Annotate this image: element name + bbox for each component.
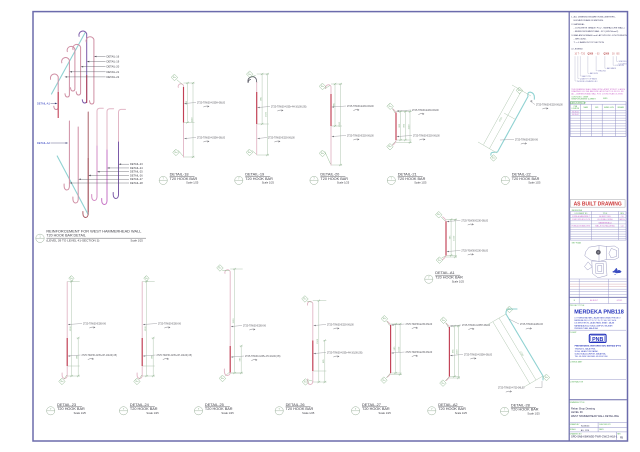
svg-text:DETAIL-26: DETAIL-26 [130, 173, 143, 177]
svg-text:SIZE: SIZE [595, 107, 598, 109]
svg-text:1500: 1500 [70, 326, 72, 332]
svg-text:T20 HOOK BAR: T20 HOOK BAR [398, 177, 426, 181]
svg-text:AS BUILT: AS BUILT [590, 299, 599, 302]
svg-text:106 SEKSYEN 90, JALAN HANG JEB: 106 SEKSYEN 90, JALAN HANG JEBAT / JALAN [574, 322, 614, 325]
svg-text:LOCATION: LOCATION [619, 63, 629, 66]
svg-text:Scale 1/25: Scale 1/25 [131, 238, 144, 242]
svg-text:MERDEKA 118, LOT 51, 57, 70, 7: MERDEKA 118, LOT 51, 57, 70, 72, 100, 10… [574, 319, 617, 322]
svg-text:1500: 1500 [266, 111, 268, 117]
svg-text:1500: 1500 [317, 338, 319, 344]
svg-text:DRAWING TITLE: DRAWING TITLE [570, 401, 585, 404]
svg-text:DETAIL-23: DETAIL-23 [57, 402, 76, 407]
svg-text:2T25-T0W30-E230-06L00: 2T25-T0W30-E230-06L00 [347, 135, 374, 137]
svg-text:2T25-T0W30-E260-06: 2T25-T0W30-E260-06 [520, 324, 544, 326]
svg-text:2T25-T0W30-E230-06L00: 2T25-T0W30-E230-06L00 [461, 250, 488, 252]
svg-text:AS BUILT DRAWING: AS BUILT DRAWING [574, 202, 622, 208]
svg-text:Scale 1/25: Scale 1/25 [302, 411, 315, 415]
svg-text:2T25-T0W30-4235H-06L00: 2T25-T0W30-4235H-06L00 [462, 325, 491, 327]
svg-text:Q300: Q300 [588, 53, 594, 55]
svg-text:2T25-T0W30-E230-06L00: 2T25-T0W30-E230-06L00 [413, 135, 440, 137]
svg-text:Rebar Shop Drawing: Rebar Shop Drawing [571, 406, 596, 410]
svg-text:Scale 1/25: Scale 1/25 [262, 181, 275, 185]
svg-text:DETAIL-20: DETAIL-20 [107, 65, 120, 69]
svg-text:DETAIL-22: DETAIL-22 [512, 171, 531, 176]
svg-text:Scale 1/25: Scale 1/25 [186, 181, 199, 185]
svg-text:DETAIL-26: DETAIL-26 [286, 402, 305, 407]
svg-text:DETAIL-A1: DETAIL-A1 [37, 101, 50, 105]
svg-text:DETAIL-21: DETAIL-21 [398, 171, 417, 176]
svg-text:LVL39-02: LVL39-02 [572, 114, 579, 116]
svg-text:Scale 1/25: Scale 1/25 [379, 411, 392, 415]
svg-text:Scale 1/25: Scale 1/25 [337, 181, 350, 185]
svg-text:Scale 1/25: Scale 1/25 [146, 411, 159, 415]
svg-text:2T25-T0W30-E260-06: 2T25-T0W30-E260-06 [158, 323, 182, 325]
svg-text:DETAIL-16: DETAIL-16 [107, 55, 120, 59]
svg-text:T20 HOOK BAR: T20 HOOK BAR [320, 177, 348, 181]
svg-text:T20 HOOK BAR: T20 HOOK BAR [438, 407, 466, 411]
svg-text:T20 HOOK BAR: T20 HOOK BAR [435, 276, 463, 280]
svg-text:2T25-T0W30-E230-06L00: 2T25-T0W30-E230-06L00 [412, 110, 439, 112]
svg-text:SPD-SAB-KBKW3E-TWR-CWC3-H18-1: SPD-SAB-KBKW3E-TWR-CWC3-H18-1 [571, 435, 618, 439]
svg-text:1500: 1500 [398, 346, 400, 352]
svg-text:DETAIL-A2: DETAIL-A2 [438, 402, 457, 407]
svg-text:2T25-T0W30-4235H-06L00: 2T25-T0W30-4235H-06L00 [197, 102, 226, 104]
svg-text:BAR MARK: BAR MARK [607, 67, 617, 70]
svg-text:MAHARAJALELA, KUALA LUMPUR, WI: MAHARAJALELA, KUALA LUMPUR, WILAYAH [574, 324, 613, 327]
svg-text:2T25-T0W30-4235+4H-10L00(.05): 2T25-T0W30-4235+4H-10L00(.05) [271, 106, 307, 108]
svg-text:Scale 1/25: Scale 1/25 [74, 411, 87, 415]
svg-text:T20 HOOK BAR: T20 HOOK BAR [362, 407, 390, 411]
svg-text:GRID: GRID [603, 98, 608, 100]
svg-text:2T25-T0W30-E230-06L00: 2T25-T0W30-E230-06L00 [406, 324, 433, 326]
svg-text:ELEVATION ARE IN METERS.: ELEVATION ARE IN METERS. [574, 19, 604, 22]
svg-text:EMBED LGTH: EMBED LGTH [604, 107, 614, 109]
svg-text:10 T - T20: 10 T - T20 [575, 53, 586, 55]
svg-text:PERSEKUTUAN, MALAYSIA: PERSEKUTUAN, MALAYSIA [574, 327, 598, 330]
svg-text:COMPOSITE-BOLLY-LTE: COMPOSITE-BOLLY-LTE [572, 219, 590, 221]
svg-text:1. ALL DIMENSIONS ARE IN MILLI: 1. ALL DIMENSIONS ARE IN MILLIMETERS, [571, 16, 616, 19]
svg-text:Scale 1/25: Scale 1/25 [414, 181, 427, 185]
svg-text:- REINFORCEMENT BAR - FLY (485: - REINFORCEMENT BAR - FLY (485 N/mm2) [574, 30, 619, 33]
svg-text:FORM-A-SAB-KW3E-T: FORM-A-SAB-KW3E-T [572, 215, 590, 218]
svg-text:T20 HOOK BAR: T20 HOOK BAR [286, 407, 314, 411]
svg-text:Scale 1/25: Scale 1/25 [528, 181, 541, 185]
svg-text:*L = 4 BARS IN TOP SECTION: *L = 4 BARS IN TOP SECTION [574, 41, 605, 44]
svg-text:2T25-T0W30-E260-06: 2T25-T0W30-E260-06 [83, 323, 107, 325]
svg-text:Q300: Q300 [604, 53, 610, 55]
svg-text:DATE: DATE [599, 428, 604, 431]
svg-text:BS: BS [617, 53, 621, 55]
svg-text:DRAWN BY: DRAWN BY [570, 423, 580, 426]
svg-text:1500: 1500 [191, 117, 193, 123]
svg-text:1500: 1500 [145, 326, 147, 332]
svg-text:Scale 1/25: Scale 1/25 [455, 411, 468, 415]
svg-text:T20 HOOK BAR: T20 HOOK BAR [130, 407, 158, 411]
svg-text:DETAIL-18: DETAIL-18 [170, 171, 189, 176]
svg-text:2. MATERIAL:: 2. MATERIAL: [571, 23, 585, 26]
svg-text:2T25-T0W30-4235H-06L00: 2T25-T0W30-4235H-06L00 [197, 137, 226, 139]
svg-text:PNB: PNB [592, 337, 603, 343]
svg-text:DETAIL-27: DETAIL-27 [130, 177, 143, 181]
svg-text:DETAIL-A1: DETAIL-A1 [435, 270, 454, 275]
svg-text:2T25-T0W30-4235+4H-10L00(.05): 2T25-T0W30-4235+4H-10L00(.05) [157, 355, 193, 357]
svg-text:DETAIL-19: DETAIL-19 [245, 171, 264, 176]
svg-text:LVL39-01: LVL39-01 [572, 112, 579, 114]
svg-text:CHECKED BY: CHECKED BY [599, 424, 611, 426]
svg-text:REINFORCEMENT 4-SHEET: REINFORCEMENT 4-SHEET [571, 99, 596, 101]
svg-text:PNB MERDEKA VENTURES SDN. BERH: PNB MERDEKA VENTURES SDN. BERHAD (PTY) [575, 344, 622, 347]
svg-text:1500: 1500 [233, 318, 235, 324]
svg-text:CLIENT: CLIENT [570, 332, 578, 334]
svg-text:LEVEL 39: LEVEL 39 [571, 410, 583, 414]
svg-text:6/2021: 6/2021 [617, 300, 623, 302]
svg-text:TEL: 03-2050 5100 FAX: 03-205: TEL: 03-2050 5100 FAX: 03-2050 5190 [575, 355, 608, 358]
svg-text:T20 HOOK BAR: T20 HOOK BAR [245, 177, 273, 181]
svg-text:DOCUMENT NO: DOCUMENT NO [575, 213, 588, 215]
svg-text:2T25-T0W30-E230-06L00: 2T25-T0W30-E230-06L00 [268, 137, 295, 139]
svg-text:DETAIL-19: DETAIL-19 [107, 60, 120, 64]
svg-text:1500: 1500 [408, 124, 410, 130]
svg-text:ALL - DIMENSION AND WALL POS.: ALL - DIMENSION AND WALL POS. COORD PLAN… [571, 93, 623, 96]
svg-text:BAR SIZE: BAR SIZE [590, 72, 599, 75]
svg-text:2T25-T0W30-4235H-06L00: 2T25-T0W30-4235H-06L00 [464, 354, 493, 356]
svg-text:DETAIL-24: DETAIL-24 [130, 402, 150, 407]
svg-text:2T25-T0W30-E230-06L00: 2T25-T0W30-E230-06L00 [461, 220, 488, 222]
svg-text:T20 HOOK BAR: T20 HOOK BAR [511, 408, 539, 412]
svg-text:FB: FB [620, 436, 623, 439]
svg-text:DETAIL-21: DETAIL-21 [107, 70, 120, 74]
svg-text:DETAIL-24: DETAIL-24 [130, 166, 143, 170]
svg-text:2T25-T0W30-E260-06: 2T25-T0W30-E260-06 [515, 140, 539, 142]
svg-text:T20 HOOK BAR DETAIL: T20 HOOK BAR DETAIL [46, 234, 85, 238]
svg-text:DETAIL-25: DETAIL-25 [205, 402, 224, 407]
svg-text:KEY PLAN: KEY PLAN [572, 241, 582, 244]
svg-text:4. LEGEND:: 4. LEGEND: [571, 49, 583, 51]
svg-text:DETAIL-20: DETAIL-20 [320, 171, 340, 176]
svg-text:SPACING: SPACING [598, 70, 606, 73]
svg-text:T20 HOOK BAR: T20 HOOK BAR [205, 407, 233, 411]
svg-text:2T25-T0W30-E230-06L00: 2T25-T0W30-E230-06L00 [327, 324, 354, 326]
svg-text:MERDEKA PNB118: MERDEKA PNB118 [574, 310, 624, 316]
svg-text:DETAIL-28: DETAIL-28 [130, 181, 143, 185]
svg-text:2T25-T0W30-E230-06L00: 2T25-T0W30-E230-06L00 [536, 104, 563, 106]
svg-text:C-B: C-B [621, 226, 624, 228]
svg-text:DETAIL-23: DETAIL-23 [130, 162, 143, 166]
svg-text:A1: 1/20: A1: 1/20 [581, 429, 590, 432]
svg-text:DETAIL-28: DETAIL-28 [511, 402, 530, 407]
svg-text:3. BAR ANCHORAGE and LAP SPLIC: 3. BAR ANCHORAGE and LAP SPLICE LGTH TEN… [571, 34, 627, 37]
svg-text:2T25-T0W30-4235+4H-10L00(.05): 2T25-T0W30-4235+4H-10L00(.05) [82, 355, 118, 357]
svg-text:2T25-T0W30-4720-06L00: 2T25-T0W30-4720-06L00 [498, 387, 525, 389]
svg-text:T20 HOOK BAR: T20 HOOK BAR [170, 177, 198, 181]
svg-text:2T25-T0W30-E230-06L00: 2T25-T0W30-E230-06L00 [406, 352, 433, 354]
svg-text:DETAIL-25: DETAIL-25 [130, 170, 143, 174]
svg-text:WEST HAMMERHEAD WALL DETAIL-B9: WEST HAMMERHEAD WALL DETAIL-B9a [571, 415, 619, 418]
svg-text:1500: 1500 [457, 349, 459, 355]
svg-text:2T25-T0W30-4235+4H-10L00(.05): 2T25-T0W30-4235+4H-10L00(.05) [245, 356, 281, 358]
svg-text:- CONCRETE GRADE: FCU - 90MPA(: - CONCRETE GRADE: FCU - 90MPA(CORE WALL) [574, 27, 625, 30]
svg-text:LOT MERDEKA PARK, JALAN HANG J: LOT MERDEKA PARK, JALAN HANG JEBAT, PREC… [574, 317, 621, 320]
svg-text:2T25-T0W30-E230-06L00: 2T25-T0W30-E230-06L00 [347, 106, 374, 108]
svg-text:DETAIL-A2: DETAIL-A2 [37, 141, 50, 145]
svg-text:DETAIL-22: DETAIL-22 [107, 75, 120, 79]
svg-text:Scale 1/25: Scale 1/25 [452, 279, 465, 283]
svg-text:1500: 1500 [454, 235, 456, 241]
svg-text:T20 HOOK BAR: T20 HOOK BAR [512, 177, 540, 181]
svg-text:C-B: C-B [621, 216, 624, 218]
svg-text:CONTRACTOR: CONTRACTOR [570, 381, 584, 384]
svg-text:CONSULTANT: CONSULTANT [570, 360, 583, 363]
svg-text:2T25-T0W30-4235+4H-10L00(.05): 2T25-T0W30-4235+4H-10L00(.05) [327, 352, 363, 354]
svg-text:SCALE: SCALE [570, 428, 577, 431]
svg-text:BAR TYPE: BAR TYPE [582, 75, 591, 78]
svg-text:(LEVEL 39 TO LEVEL 41-SECTION: (LEVEL 39 TO LEVEL 41-SECTION 3) [46, 239, 99, 243]
svg-text:DETAIL-27: DETAIL-27 [362, 402, 381, 407]
svg-text:Scale 1/25: Scale 1/25 [221, 411, 234, 415]
svg-text:PROJECT TITLE: PROJECT TITLE [570, 305, 585, 307]
svg-text:Scale 1/25: Scale 1/25 [527, 411, 540, 415]
svg-text:T20 HOOK BAR: T20 HOOK BAR [57, 407, 85, 411]
svg-text:- GRK 40/60.: - GRK 40/60. [574, 39, 587, 41]
svg-text:2T25-T0W30-E260-06: 2T25-T0W30-E260-06 [243, 325, 267, 327]
